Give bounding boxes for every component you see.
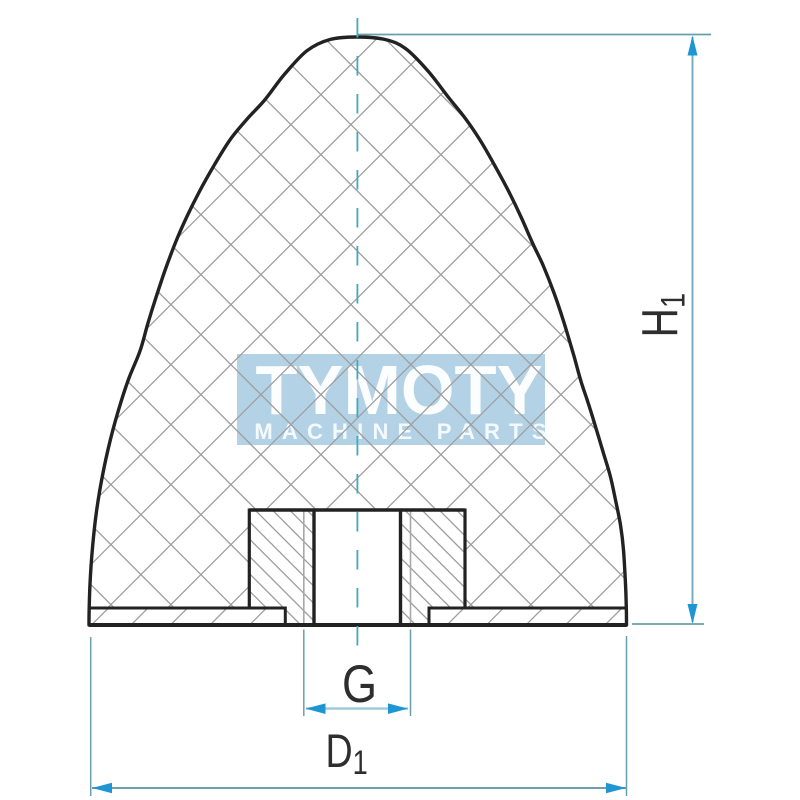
svg-text:MACHINE PARTS: MACHINE PARTS — [254, 419, 555, 444]
svg-text:H1: H1 — [631, 293, 692, 338]
svg-text:D1: D1 — [326, 725, 368, 782]
svg-text:G: G — [342, 655, 377, 714]
